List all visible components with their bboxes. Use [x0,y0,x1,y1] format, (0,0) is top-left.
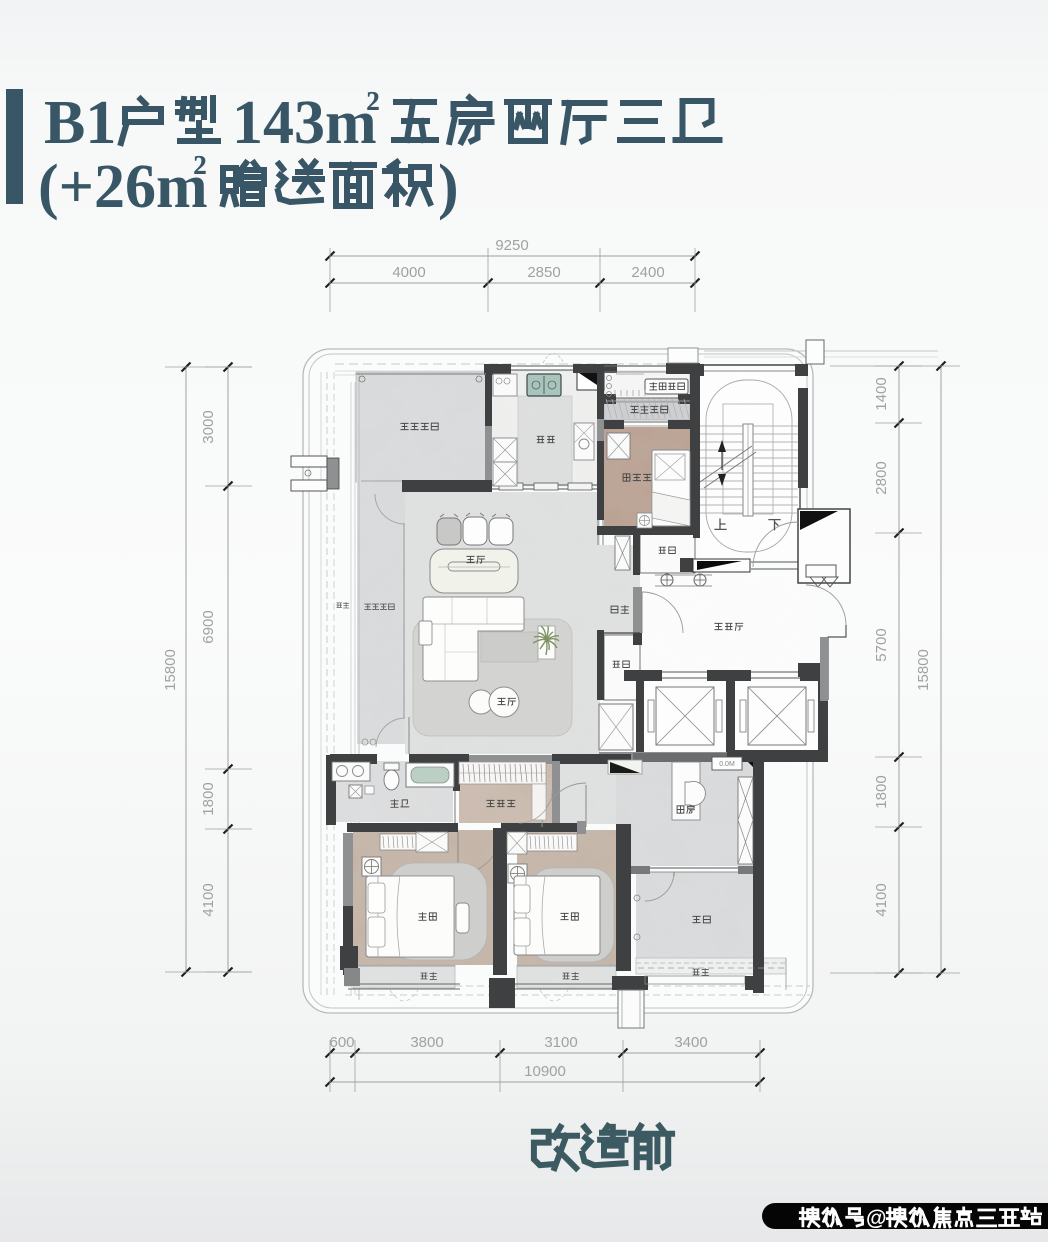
svg-text:0.0M: 0.0M [719,761,735,768]
svg-text:2800: 2800 [873,461,890,494]
svg-text:²: ² [366,81,380,132]
svg-text:600: 600 [329,1034,354,1051]
svg-text:143m: 143m [232,89,377,157]
svg-text:3100: 3100 [544,1034,577,1051]
svg-text:@: @ [866,1207,886,1230]
svg-text:1800: 1800 [873,775,890,808]
svg-text:2400: 2400 [631,264,664,281]
svg-text:1400: 1400 [873,377,890,410]
svg-text:5700: 5700 [873,628,890,661]
svg-text:3000: 3000 [200,410,217,443]
svg-text:6900: 6900 [200,610,217,643]
svg-text:2850: 2850 [527,264,560,281]
svg-text:4000: 4000 [392,264,425,281]
svg-text:4100: 4100 [873,883,890,916]
svg-text:4100: 4100 [200,883,217,916]
svg-text:3400: 3400 [674,1034,707,1051]
svg-text:²: ² [193,145,207,196]
svg-text:15800: 15800 [915,649,932,691]
svg-text:9250: 9250 [495,237,528,254]
svg-text:1800: 1800 [200,782,217,815]
svg-text:B1: B1 [44,89,116,157]
svg-text:15800: 15800 [162,649,179,691]
svg-text:3800: 3800 [410,1034,443,1051]
svg-text:): ) [438,153,459,221]
svg-text:(+26m: (+26m [38,153,208,221]
svg-text:10900: 10900 [524,1063,566,1080]
